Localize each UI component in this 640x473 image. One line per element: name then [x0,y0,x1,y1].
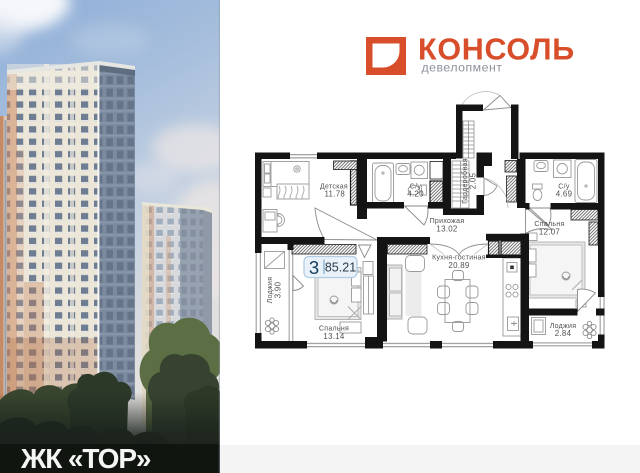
svg-text:4.69: 4.69 [556,190,573,199]
svg-text:13.14: 13.14 [323,332,345,341]
svg-text:3.90: 3.90 [274,281,283,298]
svg-text:3: 3 [309,257,319,278]
svg-text:2.84: 2.84 [555,329,572,338]
svg-text:ЖК «ТОР»: ЖК «ТОР» [20,443,151,473]
svg-text:11.78: 11.78 [324,190,345,199]
svg-text:девелопмент: девелопмент [422,61,503,75]
svg-text:4.20: 4.20 [407,190,424,199]
svg-text:13.02: 13.02 [436,225,457,234]
svg-text:20.89: 20.89 [448,261,470,270]
svg-text:85.21: 85.21 [325,261,356,275]
svg-text:2.05: 2.05 [469,172,478,189]
svg-text:12.07: 12.07 [539,228,560,237]
